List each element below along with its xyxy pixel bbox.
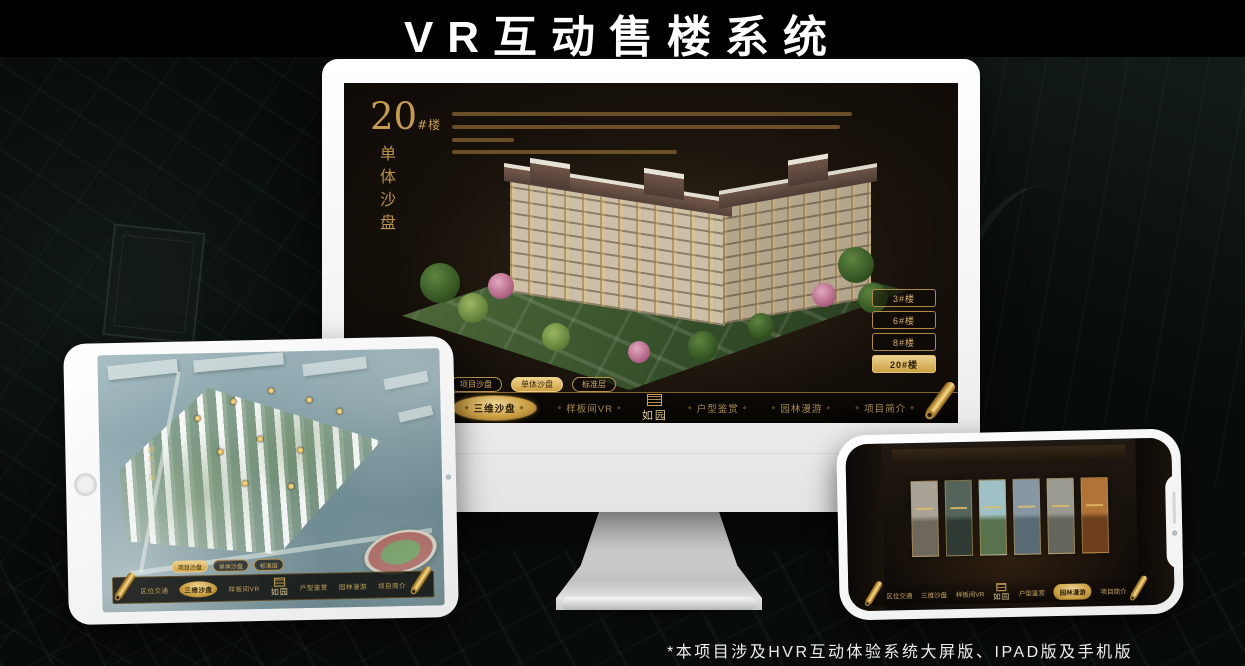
menu-item-garden-tour[interactable]: 园林漫游 — [339, 580, 367, 591]
road-name-label: 园区三路 — [145, 446, 156, 482]
phone-menu-bar: 区位交通 三维沙盘 样板间VR 如园 户型鉴赏 园林漫游 项目简介 — [866, 579, 1146, 606]
scene-thumbnail[interactable] — [945, 480, 974, 557]
building-badge-dot[interactable] — [230, 398, 236, 404]
menu-item-location-traffic[interactable]: 区位交通 — [140, 584, 168, 595]
logo-text: 如园 — [642, 407, 668, 423]
tree-blob — [838, 247, 874, 283]
building-badge-dot[interactable] — [257, 436, 263, 442]
description-text-line — [452, 125, 840, 129]
floor-button-6[interactable]: 6#楼 — [872, 311, 936, 329]
phone-camera-dot — [1172, 530, 1177, 535]
building-3d-model[interactable] — [392, 155, 917, 390]
scene-thumbnail[interactable] — [1047, 478, 1076, 555]
flower-blob — [628, 341, 650, 363]
tree-blob — [748, 313, 774, 339]
logo-text: 如园 — [993, 591, 1010, 602]
subtab-project-sandbox[interactable]: 项目沙盘 — [172, 560, 208, 573]
background-plaque-shape — [102, 223, 205, 344]
building-badge-dot[interactable] — [306, 397, 312, 403]
city-building-block — [302, 356, 367, 376]
subtab-standard-floor[interactable]: 标准层 — [254, 559, 284, 572]
building-number-unit: #楼 — [417, 118, 441, 132]
tablet-device: 园区三路 项目沙盘 单体沙盘 标准层 区位交通 三维沙盘 样板间VR 如园 户型… — [63, 336, 459, 625]
tree-blob — [420, 263, 460, 303]
flower-blob — [812, 283, 836, 307]
menu-item-floorplan[interactable]: 户型鉴赏 — [1019, 587, 1045, 598]
menu-item-garden-tour[interactable]: 园林漫游 — [1054, 583, 1092, 600]
flower-blob — [488, 273, 514, 299]
menu-item-model-room-vr[interactable]: 样板间VR — [228, 583, 259, 594]
building-badge-dot[interactable] — [217, 449, 223, 455]
project-logo: 如园 — [642, 394, 668, 423]
building-badge-dot[interactable] — [268, 388, 274, 394]
logo-text: 如园 — [271, 586, 289, 597]
floor-button-8[interactable]: 8#楼 — [872, 333, 936, 351]
tablet-screen: 园区三路 项目沙盘 单体沙盘 标准层 区位交通 三维沙盘 样板间VR 如园 户型… — [97, 348, 444, 612]
menu-item-location-traffic[interactable]: 区位交通 — [886, 590, 912, 601]
project-logo: 如园 — [993, 583, 1010, 602]
subtab-building-sandbox[interactable]: 单体沙盘 — [511, 377, 563, 392]
scroll-icon[interactable] — [114, 571, 137, 601]
building-badge-dot[interactable] — [242, 480, 248, 486]
tablet-subtab-group: 项目沙盘 单体沙盘 标准层 — [172, 559, 284, 573]
menu-item-model-room-vr[interactable]: 样板间VR — [553, 401, 625, 415]
menu-item-3d-sandbox[interactable]: 三维沙盘 — [452, 395, 538, 421]
city-building-block — [193, 352, 284, 372]
subtab-standard-floor[interactable]: 标准层 — [572, 377, 616, 392]
tree-blob — [542, 323, 570, 351]
city-building-block — [398, 405, 433, 422]
building-badge-dot[interactable] — [288, 483, 294, 489]
subtab-project-sandbox[interactable]: 项目沙盘 — [450, 377, 502, 392]
logo-seal-icon — [274, 577, 285, 586]
logo-seal-icon — [996, 583, 1006, 591]
phone-speaker-slit — [1172, 491, 1176, 523]
footnote-text: *本项目涉及HVR互动体验系统大屏版、IPAD版及手机版 — [667, 638, 1133, 662]
tablet-menu-bar: 区位交通 三维沙盘 样板间VR 如园 户型鉴赏 园林漫游 项目简介 — [112, 570, 434, 604]
menu-item-floorplan[interactable]: 户型鉴赏 — [300, 581, 328, 592]
menu-item-3d-sandbox[interactable]: 三维沙盘 — [921, 589, 947, 600]
floor-button-3[interactable]: 3#楼 — [872, 289, 936, 307]
scene-thumbnail[interactable] — [1081, 477, 1110, 554]
phone-screen: 区位交通 三维沙盘 样板间VR 如园 户型鉴赏 园林漫游 项目简介 — [845, 438, 1174, 612]
scene-thumbnail[interactable] — [979, 479, 1008, 556]
sandbox-subtab-group: 项目沙盘 单体沙盘 标准层 — [450, 377, 616, 392]
city-building-block — [383, 371, 428, 390]
phone-device: 区位交通 三维沙盘 样板间VR 如园 户型鉴赏 园林漫游 项目简介 — [836, 428, 1184, 620]
monitor-stand — [556, 511, 762, 610]
tablet-camera-dot — [446, 474, 451, 479]
menu-item-garden-tour[interactable]: 园林漫游 — [768, 401, 836, 415]
menu-item-project-intro[interactable]: 项目简介 — [378, 579, 406, 590]
building-badge-dot[interactable] — [297, 447, 303, 453]
tablet-home-button[interactable] — [74, 472, 97, 495]
building-number: 20 — [370, 95, 417, 138]
phone-notch — [1165, 474, 1183, 568]
project-logo: 如园 — [270, 577, 288, 597]
building-badge-dot[interactable] — [337, 408, 343, 414]
menu-item-floorplan[interactable]: 户型鉴赏 — [684, 401, 752, 415]
logo-seal-icon — [647, 394, 662, 406]
building-number-title: 20#楼 — [370, 98, 441, 135]
menu-item-model-room-vr[interactable]: 样板间VR — [956, 588, 985, 599]
floor-button-20[interactable]: 20#楼 — [872, 355, 936, 373]
scene-thumbnail[interactable] — [1013, 478, 1042, 555]
subtab-building-sandbox[interactable]: 单体沙盘 — [213, 559, 249, 572]
menu-item-project-intro[interactable]: 项目简介 — [851, 401, 919, 415]
menu-item-3d-sandbox[interactable]: 三维沙盘 — [179, 580, 217, 597]
building-badge-dot[interactable] — [195, 415, 201, 421]
scene-thumbnail[interactable] — [911, 481, 940, 558]
tree-blob — [458, 293, 488, 323]
tree-blob — [688, 331, 718, 361]
description-text-line — [452, 112, 852, 116]
city-building-block — [107, 359, 178, 380]
menu-item-project-intro[interactable]: 项目简介 — [1100, 585, 1126, 596]
page-title: VR互动售楼系统 — [0, 1, 1245, 65]
floor-button-group: 3#楼 6#楼 8#楼 20#楼 — [872, 289, 936, 373]
scene-gallery — [911, 477, 1110, 557]
